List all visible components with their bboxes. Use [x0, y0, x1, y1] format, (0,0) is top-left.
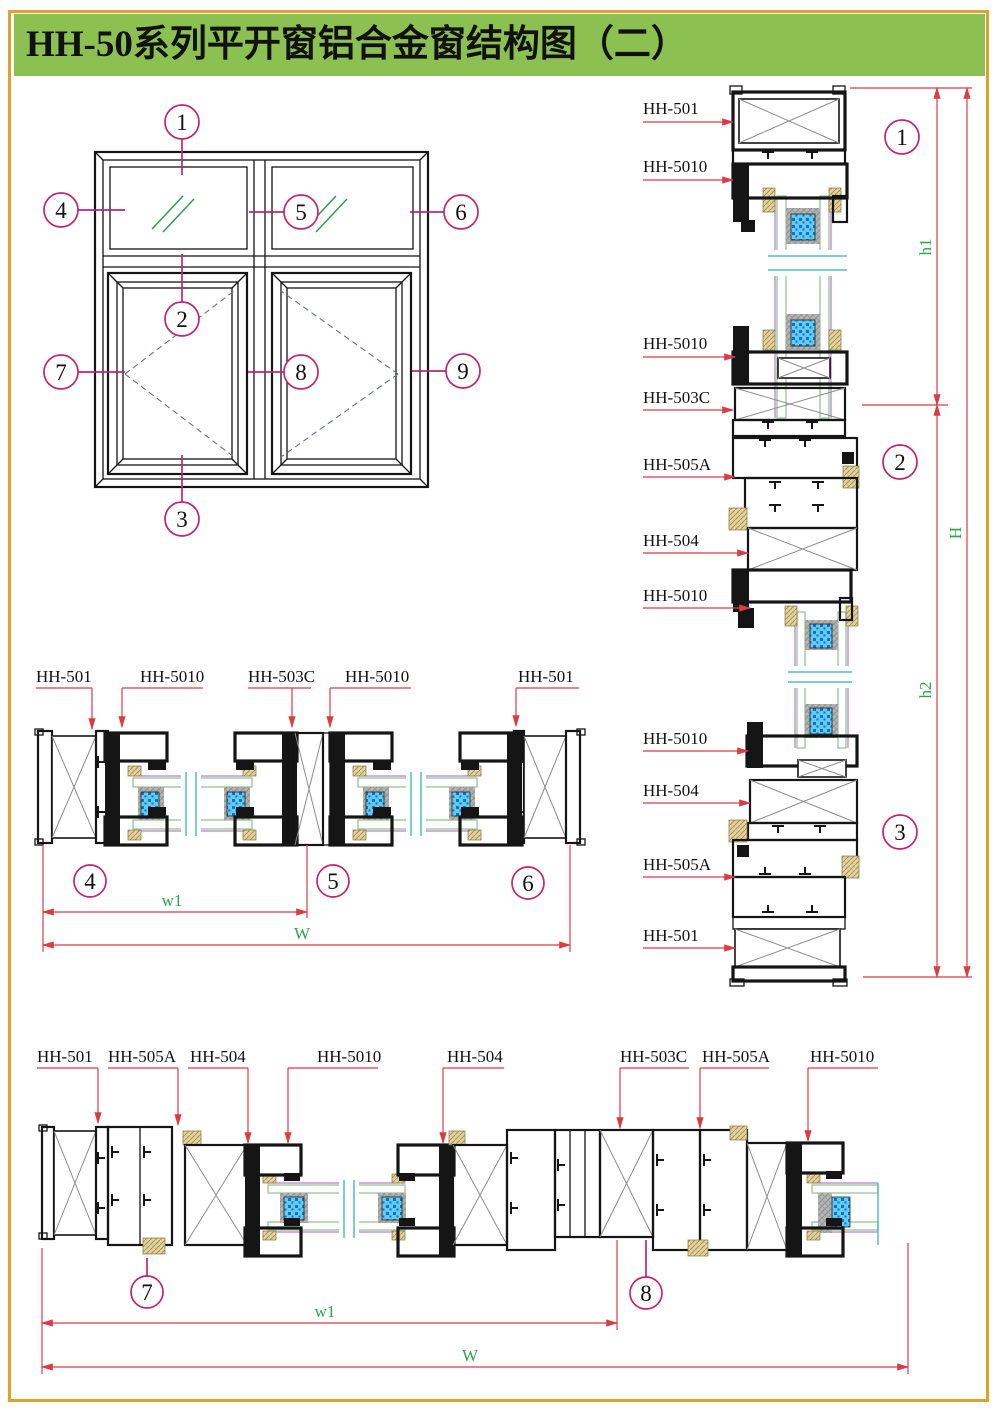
- roller: [842, 856, 859, 878]
- gasket: [829, 330, 841, 350]
- section-callout-7: 7: [141, 1280, 153, 1305]
- profile-mullion-503C: [600, 1130, 653, 1237]
- dim-w1: w1: [162, 891, 183, 910]
- profile-frame-left-501: [39, 1125, 108, 1239]
- dim-W: W: [462, 1346, 479, 1365]
- gasket: [353, 766, 366, 776]
- drawing-canvas: 1 2 3 4 5 6 7 8 9: [0, 0, 1000, 1415]
- profile-frame-right-501: [514, 729, 585, 845]
- label-hh5010: HH-5010: [810, 1047, 874, 1066]
- profile-504-left: [183, 1131, 247, 1245]
- profile-505A-lower: [733, 840, 859, 878]
- label-hh505a: HH-505A: [702, 1047, 771, 1066]
- label-hh5010: HH-5010: [345, 667, 409, 686]
- mid-section-labels: HH-501 HH-5010 HH-503C HH-5010 HH-501: [36, 667, 579, 729]
- callout-8: 8: [295, 360, 307, 385]
- mid-section-callouts: 4 5 6: [74, 865, 544, 899]
- gasket: [807, 1231, 820, 1240]
- label-hh501: HH-501: [36, 667, 92, 686]
- profile-frame-left-501: [35, 729, 108, 845]
- callout-6: 6: [455, 200, 467, 225]
- dim-H: H: [946, 527, 965, 539]
- roller: [729, 820, 747, 842]
- label-hh505a: HH-505A: [643, 455, 712, 474]
- section-callout-1: 1: [896, 125, 908, 150]
- profile-505A-upper: [733, 438, 859, 488]
- gasket: [785, 606, 797, 626]
- section-callout-8: 8: [640, 1281, 652, 1306]
- profile-channel-mid: [507, 1130, 600, 1250]
- label-hh5010: HH-5010: [643, 157, 707, 176]
- spacer-block: [810, 708, 832, 734]
- profile-505A-right: [653, 1126, 747, 1256]
- profile-504-right: [747, 1143, 787, 1250]
- glazing-right: [353, 766, 481, 840]
- gasket: [243, 830, 256, 840]
- callout-9: 9: [457, 359, 469, 384]
- fixed-pane-left: [110, 167, 247, 249]
- label-hh501: HH-501: [37, 1047, 93, 1066]
- profile-top-frame-501: [730, 86, 845, 164]
- gasket: [763, 188, 775, 212]
- profile-sash2-5010: [398, 1145, 454, 1256]
- profile-mullion-503C: [288, 733, 330, 845]
- callout-1: 1: [176, 110, 188, 135]
- roller: [729, 508, 747, 530]
- bottom-section-dimensions: w1 W: [42, 1240, 908, 1374]
- label-hh503c: HH-503C: [643, 388, 710, 407]
- callout-3: 3: [176, 507, 188, 532]
- label-hh5010: HH-5010: [140, 667, 204, 686]
- dim-w1: w1: [315, 1302, 336, 1321]
- callout-7: 7: [55, 360, 67, 385]
- mid-section-dimensions: w1 W: [43, 845, 570, 952]
- roller: [183, 1131, 201, 1145]
- gasket: [263, 1231, 276, 1240]
- label-hh505a: HH-505A: [108, 1047, 177, 1066]
- vertical-section-callouts: 1 2 3: [883, 120, 919, 849]
- label-hh501: HH-501: [643, 99, 699, 118]
- gasket: [128, 830, 141, 840]
- mid-horizontal-section: HH-501 HH-5010 HH-503C HH-5010 HH-501 4 …: [35, 667, 585, 952]
- drawing-sheet: HH-50系列平开窗铝合金窗结构图（二）: [0, 0, 1000, 1415]
- spacer-block: [810, 624, 832, 648]
- outer-frame: [95, 152, 428, 487]
- gasket: [128, 766, 141, 776]
- label-hh5010: HH-5010: [317, 1047, 381, 1066]
- vertical-section: HH-501 HH-5010 HH-5010 HH-503C HH-505A H…: [643, 86, 972, 986]
- roller: [143, 1238, 165, 1254]
- roller: [688, 1240, 708, 1256]
- section-callout-4: 4: [84, 869, 96, 894]
- bottom-horizontal-section: HH-501 HH-505A HH-504 HH-5010 HH-504 HH-…: [37, 1047, 908, 1374]
- dim-W: W: [294, 924, 311, 943]
- section-callout-3: 3: [894, 820, 906, 845]
- gasket: [763, 330, 775, 350]
- label-hh5010: HH-5010: [643, 586, 707, 605]
- callout-5: 5: [295, 200, 307, 225]
- glazing-left: [128, 766, 256, 840]
- section-callout-5: 5: [327, 869, 339, 894]
- section-callout-6: 6: [522, 871, 534, 896]
- spacer-block: [284, 1197, 304, 1220]
- spacer-block: [791, 214, 815, 240]
- section-callout-2: 2: [894, 450, 906, 475]
- profile-504-upper: [729, 478, 857, 570]
- gasket: [829, 188, 841, 212]
- label-hh504: HH-504: [643, 781, 699, 800]
- gasket: [468, 830, 481, 840]
- label-hh503c: HH-503C: [620, 1047, 687, 1066]
- profile-504-lower: [729, 780, 857, 842]
- label-hh504: HH-504: [190, 1047, 246, 1066]
- dim-h2: h2: [916, 682, 935, 699]
- glazing-lower: [785, 606, 858, 748]
- dim-h1: h1: [916, 239, 935, 256]
- label-hh5010: HH-5010: [643, 334, 707, 353]
- label-hh5010: HH-5010: [643, 729, 707, 748]
- label-hh501: HH-501: [643, 926, 699, 945]
- gasket: [807, 1174, 820, 1183]
- spacer-block: [791, 320, 815, 346]
- glazing-left: [263, 1174, 406, 1240]
- label-hh501: HH-501: [518, 667, 574, 686]
- label-hh503c: HH-503C: [248, 667, 315, 686]
- profile-bottom-frame-501: [730, 877, 847, 986]
- label-hh505a: HH-505A: [643, 855, 712, 874]
- profile-504-mid: [449, 1131, 507, 1245]
- profile-505A-left: [108, 1127, 172, 1254]
- roller: [449, 1131, 465, 1145]
- roller: [730, 1126, 747, 1140]
- window-elevation: 1 2 3 4 5 6 7 8 9: [44, 105, 480, 536]
- glass-mark-left: [152, 196, 194, 232]
- label-hh504: HH-504: [643, 531, 699, 550]
- bottom-section-labels: HH-501 HH-505A HH-504 HH-5010 HH-504 HH-…: [37, 1047, 878, 1143]
- spacer-block: [382, 1197, 402, 1220]
- callout-2: 2: [176, 307, 188, 332]
- label-hh504: HH-504: [447, 1047, 503, 1066]
- callout-4: 4: [55, 198, 67, 223]
- gasket: [353, 830, 366, 840]
